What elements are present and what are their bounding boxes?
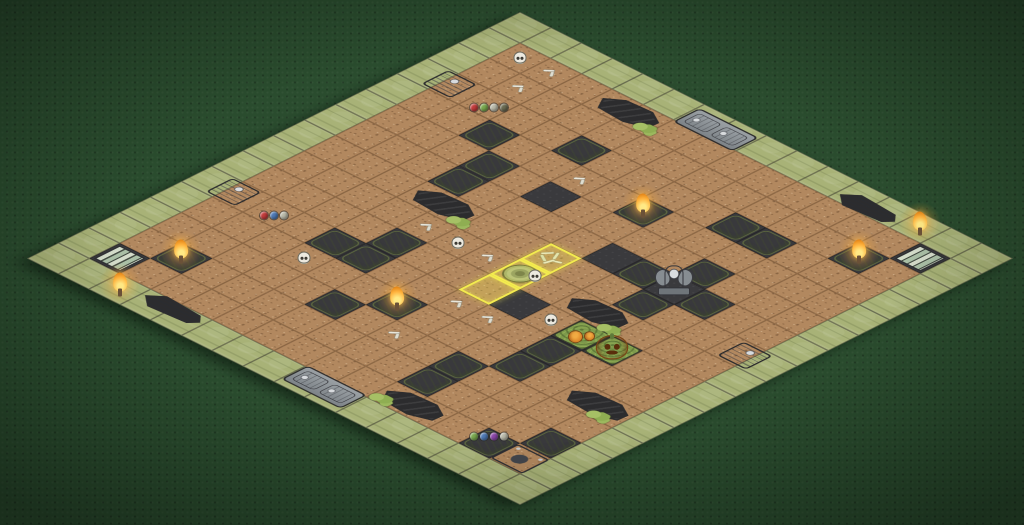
tabletop-scene: { "scene": { "description": "Isometric g… — [0, 0, 1024, 525]
game-board — [27, 12, 1013, 505]
